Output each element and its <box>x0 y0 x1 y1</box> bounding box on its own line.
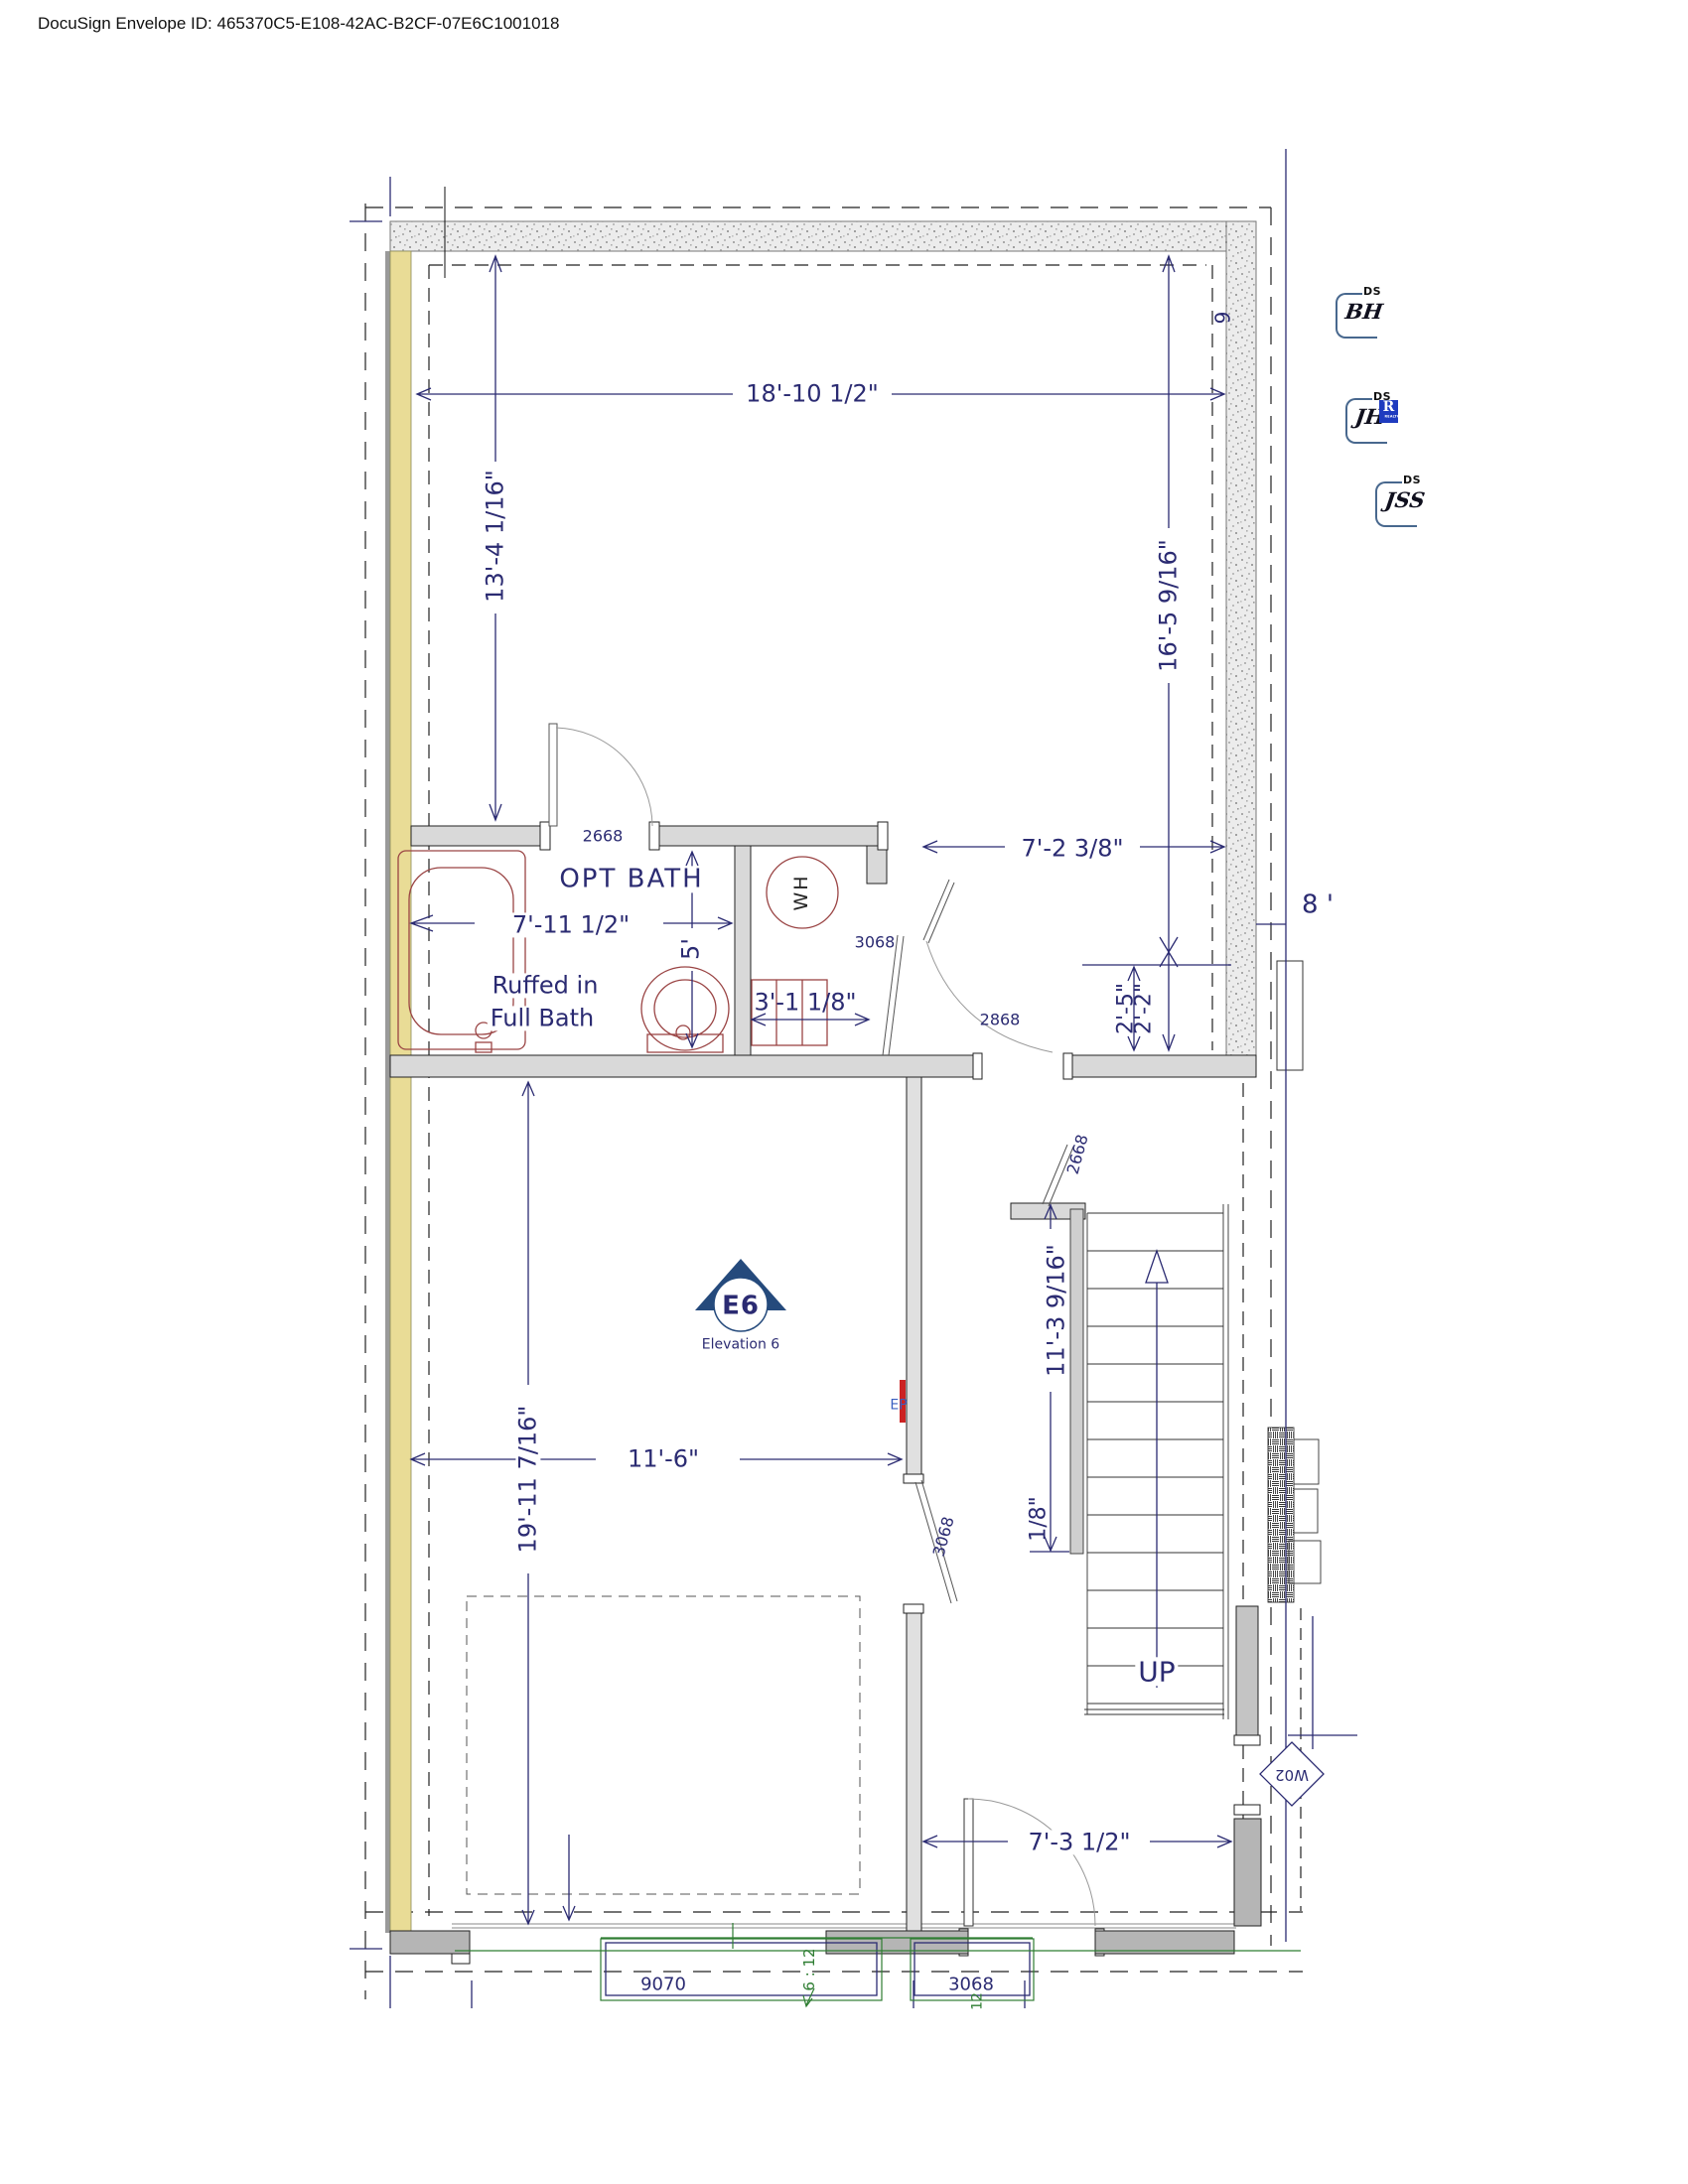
note-ruffed-in-2: Full Bath <box>488 1006 597 1030</box>
stamp-initials-bh: BH <box>1343 299 1384 324</box>
dim-room-width: 11'-6" <box>625 1446 702 1471</box>
docusign-stamp-jh: DS JH R REALTOR <box>1345 391 1401 445</box>
siding-edge-lines <box>452 1924 1236 1928</box>
right-wall-window <box>1277 961 1303 1070</box>
dim-wh-width: 3'-1 1/8" <box>754 990 856 1015</box>
dim-right-height: 16'-5 9/16" <box>1156 536 1181 675</box>
floor-plan-drawing <box>0 0 1688 2184</box>
dimension-lines <box>350 149 1357 2008</box>
wall-number-8: 8 ' <box>1302 891 1334 918</box>
realtor-logo-r: R <box>1379 400 1398 415</box>
dim-left-height: 13'-4 1/16" <box>483 467 507 606</box>
bottom-walls <box>390 1606 1261 1954</box>
door-label-wh: 3068 <box>855 935 896 952</box>
stamp-ds-label: DS <box>1402 474 1422 486</box>
realtor-logo-icon: R REALTOR <box>1379 400 1398 423</box>
docusign-envelope-id: DocuSign Envelope ID: 465370C5-E108-42AC… <box>38 14 559 34</box>
dim-bath-width: 7'-11 1/2" <box>509 912 633 937</box>
electrical-panel-label: EP <box>890 1399 907 1414</box>
water-heater-label: WH <box>792 874 812 910</box>
stamp-ds-label: DS <box>1362 285 1382 298</box>
w02-window-label: W02 <box>1275 1766 1309 1782</box>
doors <box>549 724 1095 1926</box>
dim-top-width: 18'-10 1/2" <box>743 381 882 406</box>
dim-offset-2-2: 2'-2" <box>1132 983 1155 1034</box>
roof-pitch-label: 6 : 12 <box>802 1948 818 1990</box>
note-ruffed-in-1: Ruffed in <box>490 973 602 998</box>
wall-number-9: 9 <box>1213 312 1234 325</box>
floor-plan-page: DocuSign Envelope ID: 465370C5-E108-42AC… <box>0 0 1688 2184</box>
insulated-left-wall <box>385 251 411 1933</box>
docusign-stamp-jss: DS JSS <box>1375 475 1431 528</box>
dim-hall-width: 7'-2 3/8" <box>1018 836 1126 861</box>
realtor-logo-text: REALTOR <box>1385 415 1393 418</box>
roof-12-label: 12 <box>971 1992 986 2010</box>
dim-bath-depth: 5' <box>678 938 703 960</box>
dim-entry-width: 7'-3 1/2" <box>1025 1830 1133 1854</box>
dim-stair-gap: 1/8" <box>1027 1496 1050 1542</box>
door-label-hall: 2868 <box>980 1013 1021 1029</box>
stair-up-arrowhead <box>1146 1251 1168 1283</box>
e6-marker-label: E6 <box>722 1293 760 1319</box>
dim-stair-run: 11'-3 9/16" <box>1044 1244 1068 1377</box>
dim-room-height: 19'-11 7/16" <box>515 1403 540 1557</box>
stairs-up-label: UP <box>1135 1657 1178 1686</box>
docusign-stamp-bh: DS BH <box>1336 286 1391 340</box>
room-label-opt-bath: OPT BATH <box>556 866 706 892</box>
e6-marker-caption: Elevation 6 <box>702 1338 779 1353</box>
door-label-bath: 2668 <box>580 829 627 846</box>
masonry-steps-hatch <box>1268 1428 1321 1602</box>
stamp-initials-jss: JSS <box>1383 487 1426 512</box>
door-label-garage: 9070 <box>640 1977 686 1995</box>
